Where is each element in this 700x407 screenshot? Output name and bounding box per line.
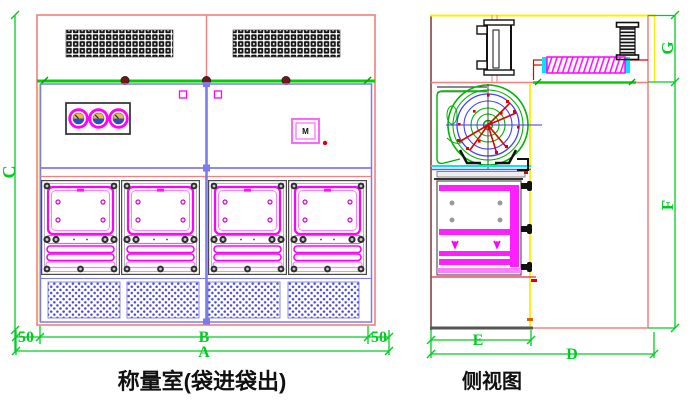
control-box-label: M	[302, 127, 309, 136]
dim-line-C	[11, 11, 19, 352]
dim-label-E: E	[473, 332, 484, 349]
exhaust-filter	[617, 23, 639, 60]
ventilation-grille-left	[66, 30, 173, 57]
dim-label-G: G	[658, 41, 677, 54]
drawing-svg: C	[0, 0, 700, 407]
chamber-side	[431, 179, 537, 321]
dim-label-C: C	[0, 166, 19, 179]
dim-line-GF	[648, 11, 679, 332]
bibo-door-unit-4	[289, 181, 367, 275]
bibo-door-unit-3	[209, 181, 287, 275]
bibo-door-unit-1	[42, 181, 120, 275]
indicator-dot	[323, 141, 327, 145]
dim-label-50-left: 50	[18, 329, 34, 346]
pressure-gauge-icon	[70, 110, 88, 128]
dim-label-A: A	[198, 344, 210, 361]
front-view: C	[0, 11, 393, 394]
side-dimensions	[427, 330, 658, 358]
pressure-gauge-icon	[90, 110, 108, 128]
dim-label-F: F	[658, 200, 677, 210]
perforated-panel-2	[127, 282, 199, 318]
perforated-panel-4	[288, 282, 359, 318]
perforated-panel-1	[48, 282, 120, 318]
dim-label-50-right: 50	[371, 329, 387, 346]
cad-drawing-weighing-room: C	[0, 0, 700, 407]
front-view-title: 称量室(袋进袋出)	[118, 369, 287, 394]
fan-platform	[431, 159, 531, 177]
centrifugal-fan	[437, 84, 542, 170]
hepa-filter-side	[533, 57, 648, 85]
bibo-door-unit-2	[122, 181, 200, 275]
ventilation-grille-right	[233, 30, 340, 57]
pressure-gauge-icon	[110, 110, 128, 128]
pressure-gauge-panel	[66, 103, 130, 134]
door-section	[41, 168, 372, 325]
perforated-panel-3	[208, 282, 280, 318]
dim-label-D: D	[566, 346, 578, 363]
side-view: G F E D 侧视图	[427, 11, 679, 393]
side-view-title: 侧视图	[462, 369, 522, 393]
damper-bracket	[477, 15, 514, 82]
